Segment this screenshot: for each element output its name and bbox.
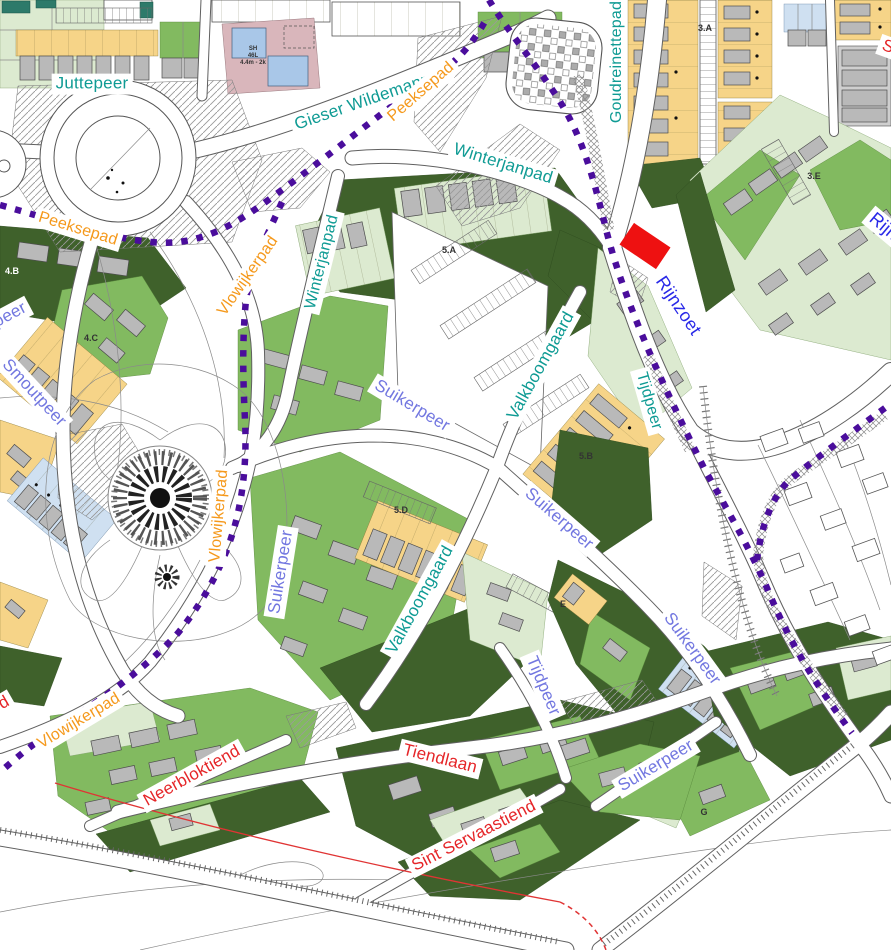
- urban-plan-map: JuttepeerGieser WildemanpadWinterjanpadG…: [0, 0, 891, 950]
- map-canvas: [0, 0, 891, 950]
